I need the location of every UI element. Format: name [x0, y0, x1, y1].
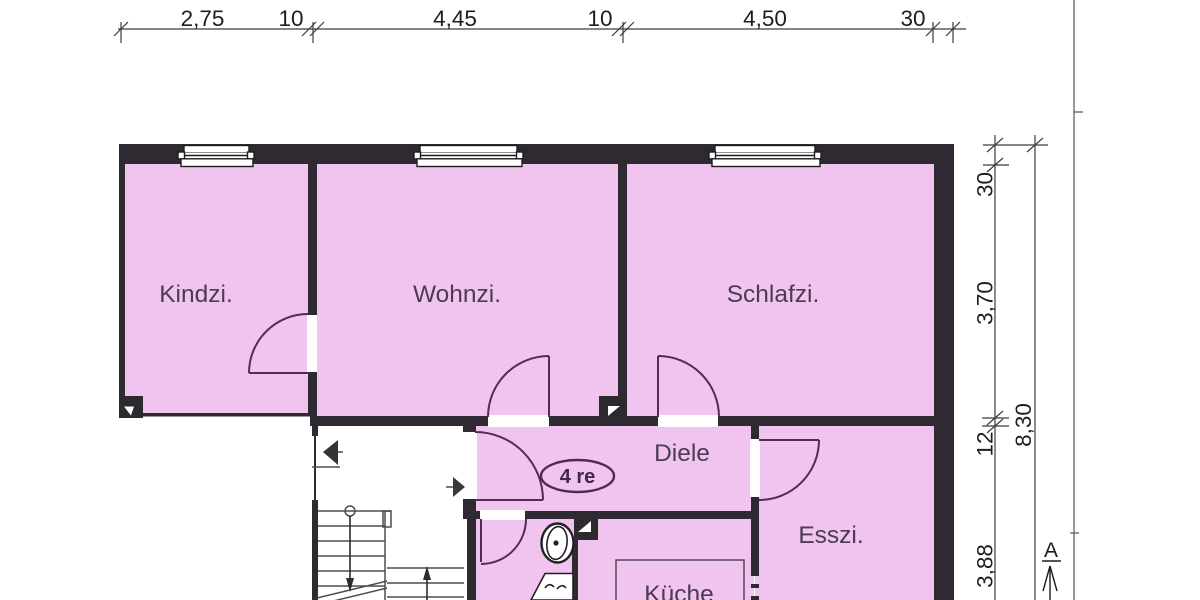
svg-text:30: 30 [973, 172, 998, 197]
svg-text:Diele: Diele [654, 440, 710, 467]
svg-text:4 re: 4 re [560, 466, 596, 488]
svg-text:10: 10 [587, 6, 612, 31]
svg-text:Kindzi.: Kindzi. [159, 281, 233, 308]
svg-text:4,45: 4,45 [433, 6, 477, 31]
svg-text:4,50: 4,50 [743, 6, 787, 31]
svg-text:3,70: 3,70 [973, 281, 998, 325]
svg-text:12: 12 [973, 431, 998, 456]
svg-text:2,75: 2,75 [181, 6, 225, 31]
svg-text:A: A [1044, 539, 1058, 562]
svg-text:8,30: 8,30 [1011, 403, 1036, 447]
svg-text:Wohnzi.: Wohnzi. [413, 281, 501, 308]
svg-text:Schlafzi.: Schlafzi. [727, 281, 820, 308]
svg-text:30: 30 [900, 6, 925, 31]
svg-text:Esszi.: Esszi. [798, 522, 863, 549]
svg-text:10: 10 [278, 6, 303, 31]
svg-text:Küche: Küche [644, 581, 713, 600]
svg-text:3,88: 3,88 [973, 544, 998, 588]
